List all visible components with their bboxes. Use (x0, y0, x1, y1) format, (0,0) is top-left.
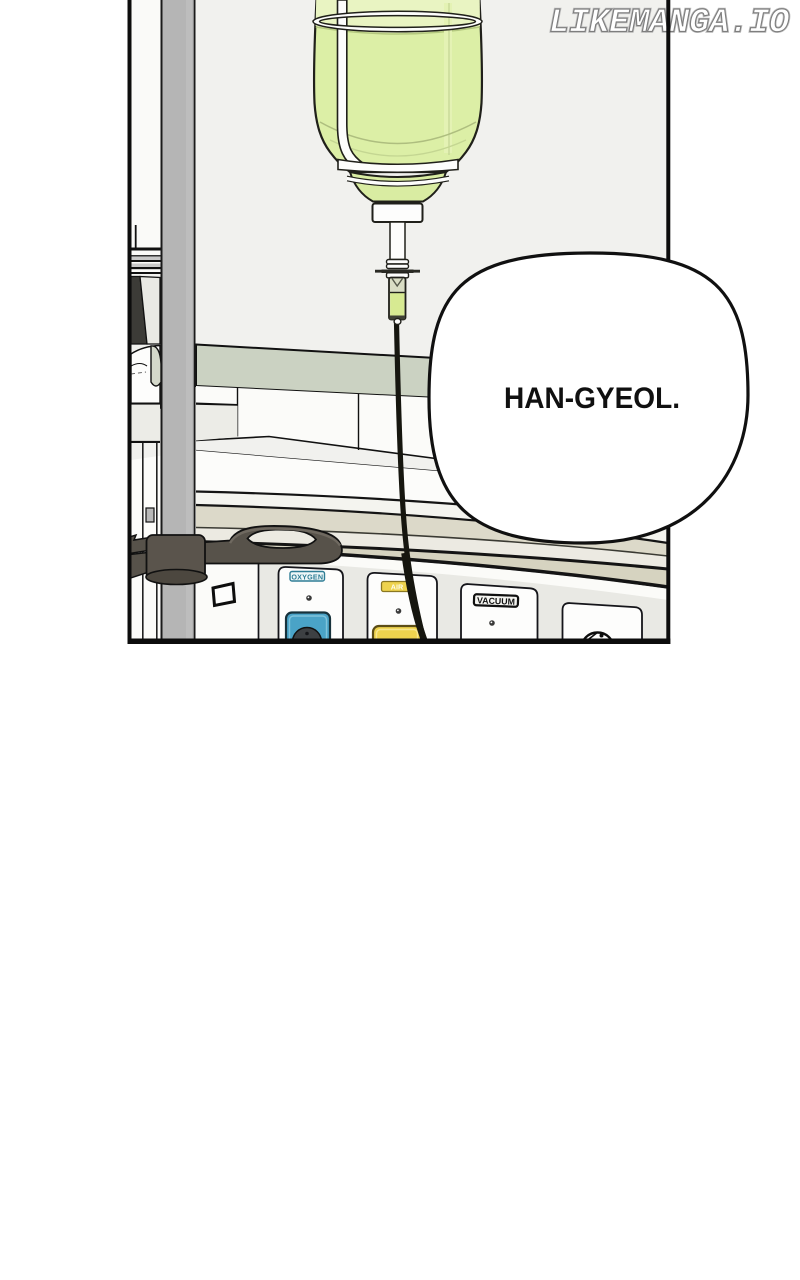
svg-text:VACUUM: VACUUM (477, 595, 515, 606)
svg-text:AIR: AIR (391, 583, 404, 592)
svg-text:HAN-GYEOL.: HAN-GYEOL. (504, 382, 680, 415)
svg-text:OXYGEN: OXYGEN (291, 572, 323, 581)
